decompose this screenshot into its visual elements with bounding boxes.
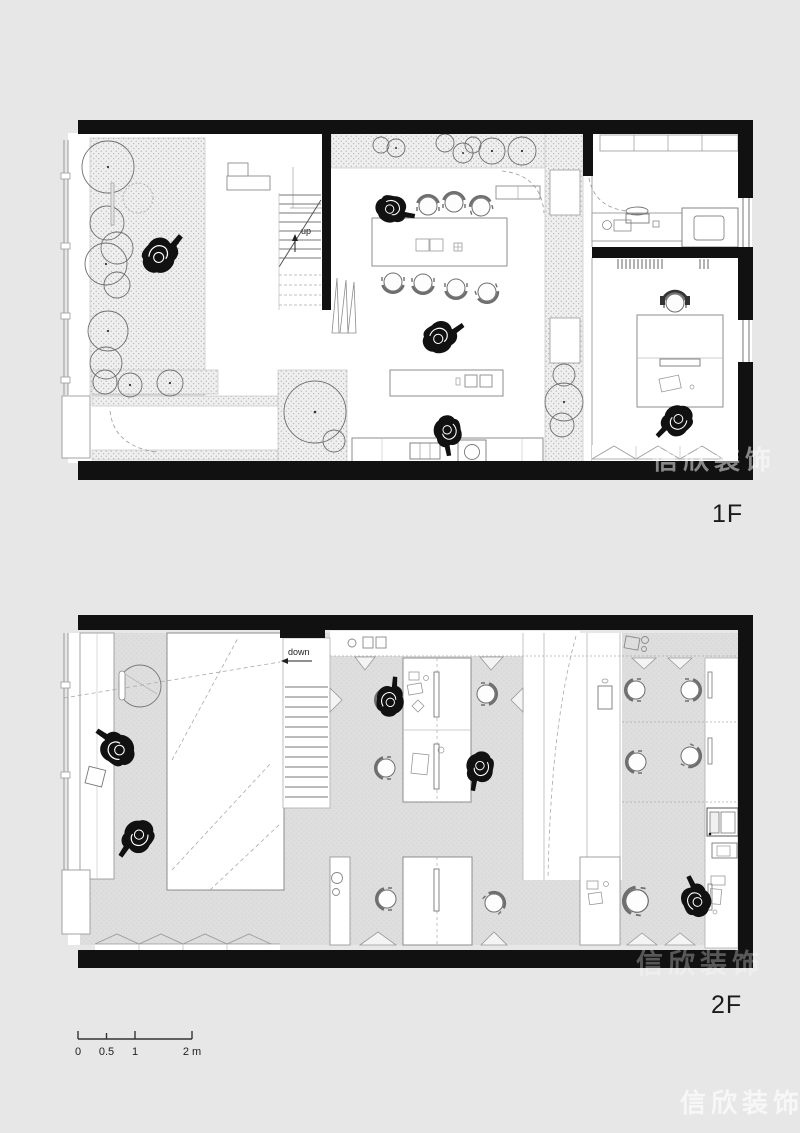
printer-icon	[707, 808, 738, 858]
scale-bar-line	[78, 1031, 192, 1039]
watermark: 信欣装饰	[636, 942, 764, 981]
meeting-table	[372, 218, 507, 266]
floor-plan-1f: up	[60, 115, 760, 485]
monitor-icon	[708, 672, 712, 698]
monitor-icon	[434, 672, 439, 717]
sink-unit	[330, 857, 350, 945]
corridor-band	[523, 633, 622, 880]
middle-room	[167, 633, 284, 890]
stair-direction-2f: down	[288, 647, 310, 657]
monitor-icon	[708, 738, 712, 764]
watermark: 信欣装饰	[680, 1083, 800, 1120]
microwave-icon	[682, 208, 738, 247]
desk-band-c	[580, 857, 620, 945]
page: up	[0, 0, 800, 1133]
kitchen-island	[390, 370, 503, 396]
floor-plan-2f: down	[60, 612, 760, 980]
floor-label-1f: 1F	[712, 500, 743, 529]
sink-icon	[458, 440, 486, 464]
floor-label-2f: 2F	[711, 991, 742, 1020]
monitor-icon	[660, 359, 700, 366]
scale-tick-1: 1	[132, 1046, 138, 1058]
scale-tick-05: 0.5	[99, 1046, 114, 1058]
scale-bar: 0 0.5 1 2 m	[60, 1026, 240, 1062]
monitor-icon	[434, 869, 439, 911]
watermark: 信欣装饰	[652, 440, 776, 477]
scale-tick-2m: 2 m	[183, 1046, 201, 1058]
stair-direction-1f: up	[301, 226, 311, 236]
upper-cabinets	[600, 135, 738, 151]
scale-tick-0: 0	[75, 1046, 81, 1058]
